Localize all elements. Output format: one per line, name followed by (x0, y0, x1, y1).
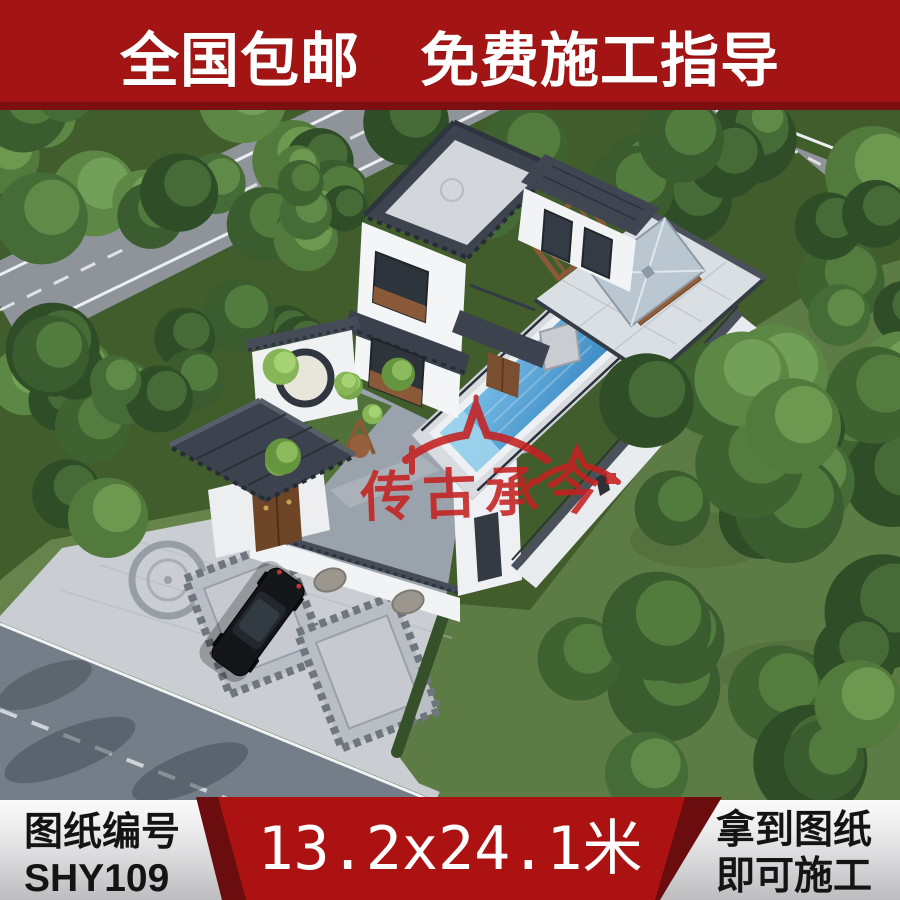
dimensions-text: 13.2x24.1米 (230, 815, 670, 883)
top-banner: 全国包邮 免费施工指导 (0, 0, 900, 110)
top-banner-text: 全国包邮 免费施工指导 (120, 13, 780, 98)
top-banner-accent-strip (0, 102, 900, 110)
aerial-courtyard-house-render: 传古承今 (0, 110, 900, 800)
product-listing-image: 全国包邮 免费施工指导 (0, 0, 900, 900)
watermark-text: 传古承今 (358, 460, 609, 529)
